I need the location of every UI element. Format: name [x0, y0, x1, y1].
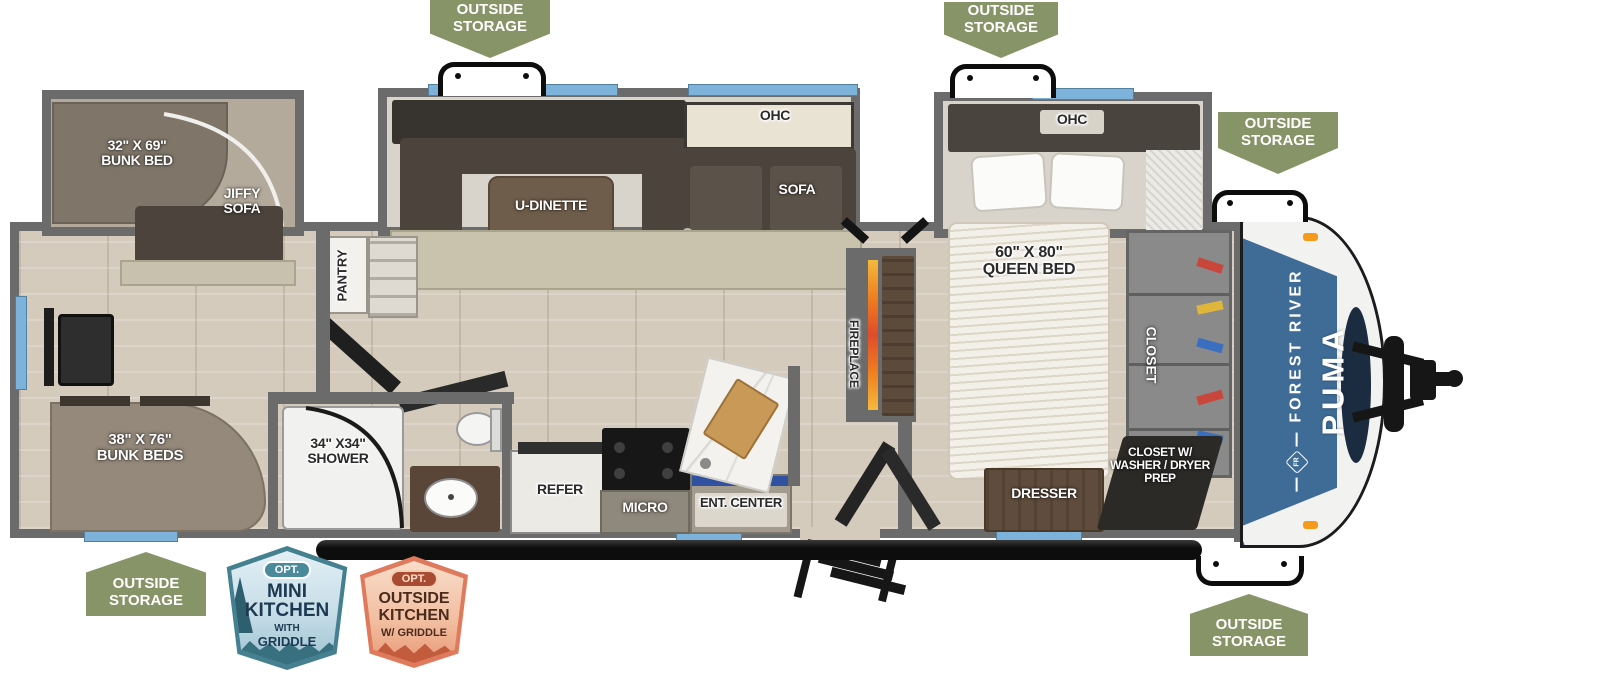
luggage-rack-2-icon — [950, 64, 1056, 98]
ent-center-label: ENT. CENTER — [693, 496, 789, 510]
sofa-label: SOFA — [752, 182, 842, 197]
rear-wall-window — [15, 296, 27, 390]
bunks-size: 38" X 76" — [108, 432, 171, 448]
pantry-text: PANTRY — [335, 249, 350, 301]
pillow-right — [1049, 152, 1126, 212]
queen-name: QUEEN BED — [983, 261, 1075, 278]
fireplace-icon — [868, 260, 878, 410]
fireplace-text: FIREPLACE — [847, 320, 861, 388]
micro-text: MICRO — [622, 500, 667, 515]
queen-size: 60" X 80" — [995, 244, 1063, 261]
stove-icon — [602, 428, 690, 492]
outside-storage-badge-top-right: OUTSIDE STORAGE — [944, 2, 1058, 58]
hitch-ball-icon — [1446, 370, 1463, 387]
luggage-rack-1-icon — [438, 62, 546, 96]
puma-wordmark: PUMA — [1316, 268, 1352, 492]
ent-center-text: ENT. CENTER — [700, 496, 782, 510]
dinette-slide-window-2 — [688, 84, 858, 96]
closet-wd-label: CLOSET W/ WASHER / DRYER PREP — [1098, 446, 1222, 485]
outside-kitchen-badge: OPT. OUTSIDE KITCHEN W/ GRIDDLE — [354, 556, 474, 668]
sofa-text: SOFA — [779, 182, 816, 197]
living-carpet — [390, 230, 862, 290]
living-ohc-label: OHC — [740, 108, 810, 123]
sink-drain — [448, 494, 454, 500]
refer-label: REFER — [512, 482, 608, 497]
mini-kitchen-line4: GRIDDLE — [225, 634, 349, 649]
luggage-rack-4-icon — [1196, 556, 1304, 586]
closet-text: CLOSET — [1143, 327, 1159, 384]
living-ohc-text: OHC — [760, 108, 790, 123]
hall-cabinet — [368, 236, 418, 318]
outside-storage-text-2: OUTSIDE STORAGE — [961, 2, 1041, 37]
refer-text: REFER — [537, 482, 583, 497]
bunk-bed-name: BUNK BED — [101, 153, 173, 168]
mini-kitchen-line2: KITCHEN — [225, 601, 349, 620]
bunk-beds-label: 38" X 76" BUNK BEDS — [70, 432, 210, 464]
outside-storage-badge-bottom-left: OUTSIDE STORAGE — [86, 552, 206, 616]
tongue-jack — [1384, 336, 1404, 432]
bathroom-wall-top — [268, 392, 514, 404]
shower-label: 34" X34" SHOWER — [288, 436, 388, 466]
queen-bed-label: 60" X 80" QUEEN BED — [956, 244, 1102, 279]
sofa-cushion-left — [690, 166, 762, 232]
burner-4 — [662, 468, 673, 479]
faucet-icon — [700, 458, 711, 469]
brand-dash-2 — [1296, 433, 1298, 447]
entry-door-opening — [800, 527, 880, 540]
tv-icon — [58, 314, 114, 386]
mini-kitchen-opt-pill: OPT. — [263, 561, 311, 579]
forest-river-text: FOREST RIVER — [1288, 268, 1306, 422]
toilet-tank — [490, 408, 502, 452]
refrigerator-top — [518, 442, 602, 454]
pillow-left — [970, 151, 1048, 212]
forest-river-wordmark: FR FOREST RIVER — [1284, 250, 1310, 510]
outside-storage-text-3: OUTSIDE STORAGE — [1238, 115, 1318, 150]
puma-text: PUMA — [1316, 324, 1352, 435]
clearance-light-bottom — [1303, 521, 1318, 529]
burner-1 — [614, 442, 625, 453]
mini-kitchen-badge: OPT. MINI KITCHEN WITH GRIDDLE — [220, 546, 354, 670]
bathroom-wall-left — [268, 392, 278, 534]
jiffy-sofa-text: JIFFY SOFA — [212, 186, 272, 216]
hitch-coupler — [1410, 360, 1436, 400]
outside-storage-text-1: OUTSIDE STORAGE — [450, 1, 530, 36]
outside-kitchen-line2: KITCHEN — [359, 608, 469, 625]
dresser-text: DRESSER — [1011, 486, 1077, 501]
outside-storage-badge-bottom-right: OUTSIDE STORAGE — [1190, 594, 1308, 656]
burner-3 — [614, 468, 625, 479]
u-dinette-label: U-DINETTE — [490, 198, 612, 213]
fr-diamond-logo: FR — [1285, 450, 1309, 474]
kitchen-wall — [788, 366, 800, 486]
fireplace-label: FIREPLACE — [842, 284, 866, 424]
micro-label: MICRO — [602, 500, 688, 515]
dresser-label: DRESSER — [988, 486, 1100, 501]
outside-kitchen-line1: OUTSIDE — [359, 591, 469, 608]
bunk-bed-label: 32" X 69" BUNK BED — [62, 138, 212, 168]
fr-logo-text: FR — [1294, 457, 1301, 466]
closet-label: CLOSET — [1136, 280, 1166, 430]
outside-storage-badge-front: OUTSIDE STORAGE — [1218, 112, 1338, 174]
mini-kitchen-line3: WITH — [225, 623, 349, 634]
bunkroom-wall-upper — [316, 230, 330, 396]
closet-wd-text: CLOSET W/ WASHER / DRYER PREP — [1105, 446, 1215, 485]
bunk-bed-size: 32" X 69" — [108, 138, 167, 153]
clothes-blue — [1196, 338, 1223, 353]
grass-band — [359, 639, 469, 663]
burner-2 — [662, 442, 673, 453]
mini-kitchen-line1: MINI — [225, 582, 349, 601]
outside-storage-text-4: OUTSIDE STORAGE — [106, 575, 186, 610]
clothes-red-2 — [1196, 390, 1223, 406]
shower-size: 34" X34" — [310, 436, 365, 451]
outside-kitchen-line3: W/ GRIDDLE — [359, 627, 469, 639]
front-cap — [1240, 216, 1386, 548]
clothes-yellow — [1196, 300, 1223, 314]
outside-storage-badge-top-left: OUTSIDE STORAGE — [430, 0, 550, 58]
sofa-cushion-right — [770, 166, 842, 232]
bunk-headboard-2 — [140, 396, 210, 406]
bedroom-ohc-label: OHC — [1040, 112, 1104, 127]
u-dinette-text: U-DINETTE — [515, 198, 587, 213]
shower-door-arc — [300, 404, 410, 532]
tv-mount — [44, 308, 54, 386]
outside-storage-text-5: OUTSIDE STORAGE — [1209, 616, 1289, 651]
floorplan-canvas: 32" X 69" BUNK BED JIFFY SOFA U-DINETTE … — [0, 0, 1600, 675]
shower-name: SHOWER — [307, 451, 368, 466]
brand-dash-1 — [1296, 478, 1298, 492]
outside-kitchen-badge-inner: OPT. OUTSIDE KITCHEN W/ GRIDDLE — [359, 561, 469, 663]
rear-bumper — [316, 540, 1202, 560]
jiffy-sofa-label: JIFFY SOFA — [192, 186, 292, 216]
bedroom-ohc-text: OHC — [1057, 112, 1087, 127]
clearance-light-top — [1303, 233, 1318, 241]
outside-kitchen-opt-pill: OPT. — [390, 570, 438, 588]
bunks-name: BUNK BEDS — [97, 448, 183, 464]
clothes-red — [1196, 257, 1224, 274]
luggage-rack-3-icon — [1212, 190, 1308, 222]
fireplace-cabinet — [882, 256, 914, 416]
jiffy-sofa-cushion — [120, 260, 296, 286]
bunk-headboard-1 — [60, 396, 130, 406]
mini-kitchen-badge-inner: OPT. MINI KITCHEN WITH GRIDDLE — [225, 551, 349, 665]
slide-sidewall — [1146, 150, 1202, 232]
